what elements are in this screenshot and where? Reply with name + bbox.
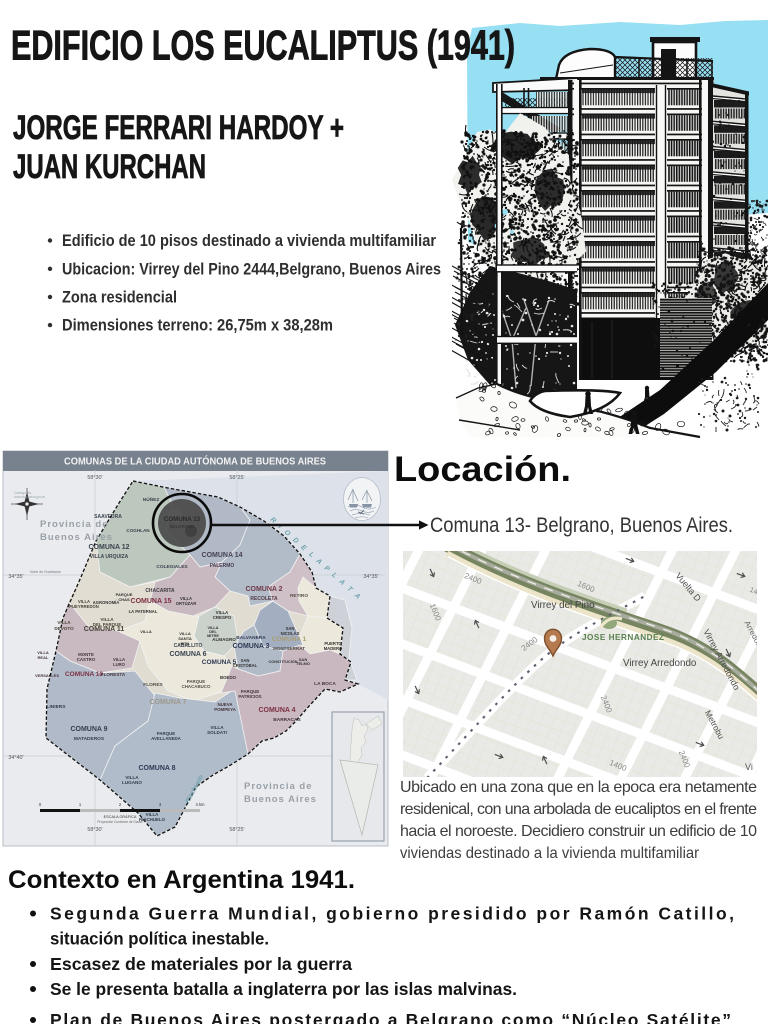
svg-text:CHACARITA: CHACARITA <box>145 588 175 594</box>
svg-text:LURO: LURO <box>113 662 126 667</box>
svg-text:4 km: 4 km <box>195 802 205 807</box>
svg-text:Ubicado en una zona que en la: Ubicado en una zona que en la epoca era … <box>400 779 757 796</box>
svg-text:34°40': 34°40' <box>8 755 23 761</box>
svg-text:CRESPO: CRESPO <box>213 615 232 620</box>
svg-text:RITA: RITA <box>180 641 189 646</box>
svg-text:Provincia de: Provincia de <box>40 519 109 530</box>
svg-text:AVELLANEDA: AVELLANEDA <box>151 736 182 741</box>
svg-text:RIACHUELO: RIACHUELO <box>139 817 166 822</box>
svg-text:Provincia de: Provincia de <box>244 781 313 792</box>
svg-text:Virrey Arredondo: Virrey Arredondo <box>623 658 697 669</box>
svg-text:BOEDO: BOEDO <box>220 675 237 680</box>
svg-text:Contexto en Argentina 1941.: Contexto en Argentina 1941. <box>8 866 355 894</box>
svg-text:POMPEYA: POMPEYA <box>214 707 236 712</box>
svg-text:COMUNA 10: COMUNA 10 <box>65 671 103 678</box>
svg-text:JOSE HERNANDEZ: JOSE HERNANDEZ <box>582 633 665 642</box>
svg-text:COMUNA 15: COMUNA 15 <box>131 598 172 605</box>
svg-text:DEL PARQUE: DEL PARQUE <box>93 622 121 627</box>
svg-text:Virrey del Pino: Virrey del Pino <box>531 600 595 611</box>
svg-text:BELGRANO: BELGRANO <box>170 524 195 529</box>
svg-text:COGHLAN: COGHLAN <box>126 528 150 533</box>
svg-text:58°30': 58°30' <box>87 475 102 481</box>
svg-text:EDIFICIO LOS EUCALIPTUS (1941): EDIFICIO LOS EUCALIPTUS (1941) <box>11 22 515 69</box>
svg-text:FLORESTA: FLORESTA <box>101 672 126 677</box>
svg-text:DEVOTO: DEVOTO <box>54 626 74 631</box>
svg-text:LINIERS: LINIERS <box>47 704 67 710</box>
svg-text:COMUNA 13: COMUNA 13 <box>164 516 201 523</box>
svg-text:COMUNA 9: COMUNA 9 <box>70 726 107 733</box>
svg-text:Buenos Aires: Buenos Aires <box>40 532 113 543</box>
svg-text:Proyección Conforme de Gauss: Proyección Conforme de Gauss <box>97 820 143 824</box>
svg-text:NICOLÁS: NICOLÁS <box>281 631 300 636</box>
svg-text:58°25': 58°25' <box>229 827 244 833</box>
svg-text:www.mapoteca.gov.ar: www.mapoteca.gov.ar <box>14 495 46 499</box>
svg-text:Segunda Guerra Mundial, gobier: Segunda Guerra Mundial, gobierno presidi… <box>50 904 734 924</box>
svg-text:CHACABUCO: CHACABUCO <box>182 684 211 689</box>
svg-text:VILLA URQUIZA: VILLA URQUIZA <box>90 554 129 560</box>
svg-text:58°25': 58°25' <box>229 475 244 481</box>
svg-text:COMUNAS DE LA CIUDAD AUTÓNOMA: COMUNAS DE LA CIUDAD AUTÓNOMA DE BUENOS … <box>64 455 326 468</box>
svg-text:PATRICIOS: PATRICIOS <box>238 694 261 699</box>
svg-text:VILLA: VILLA <box>140 629 152 634</box>
svg-text:CASTRO: CASTRO <box>77 657 96 662</box>
svg-text:CHAS: CHAS <box>118 597 130 602</box>
svg-text:Comuna 13- Belgrano, Buenos Ai: Comuna 13- Belgrano, Buenos Aires. <box>430 514 733 537</box>
svg-text:BALVANERA: BALVANERA <box>236 635 266 641</box>
svg-text:NÚÑEZ: NÚÑEZ <box>143 496 160 503</box>
svg-text:COMUNA 8: COMUNA 8 <box>138 765 175 772</box>
svg-text:58°30': 58°30' <box>87 827 102 833</box>
svg-text:PALERMO: PALERMO <box>210 563 235 569</box>
svg-text:RETIRO: RETIRO <box>290 593 308 599</box>
svg-text:COMUNA 1: COMUNA 1 <box>272 636 307 643</box>
svg-text:ORTÚZAR: ORTÚZAR <box>176 601 196 606</box>
svg-text:Se le presenta batalla a ingla: Se le presenta batalla a inglaterra por … <box>50 979 517 999</box>
svg-text:SOLDATI: SOLDATI <box>207 730 227 735</box>
svg-text:Escasez de materiales por la g: Escasez de materiales por la guerra <box>50 954 352 974</box>
svg-text:LA BOCA: LA BOCA <box>314 681 336 687</box>
svg-text:CRISTÓBAL: CRISTÓBAL <box>233 663 258 668</box>
svg-text:MATADEROS: MATADEROS <box>74 736 105 742</box>
svg-text:Buenos Aires: Buenos Aires <box>244 794 317 805</box>
svg-text:ESCALA GRÁFICA: ESCALA GRÁFICA <box>104 815 137 819</box>
svg-text:BARRACAS: BARRACAS <box>273 717 301 723</box>
svg-text:COMUNA 6: COMUNA 6 <box>169 651 206 658</box>
svg-text:ALMAGRO: ALMAGRO <box>212 637 236 642</box>
svg-text:hacia el noroeste. Decidiero c: hacia el noroeste. Decidiero construir u… <box>400 823 757 840</box>
svg-text:COMUNA 7: COMUNA 7 <box>149 699 186 706</box>
svg-text:Zona residencial: Zona residencial <box>62 289 177 307</box>
svg-text:34°35': 34°35' <box>363 574 378 580</box>
svg-text:LA PATERNAL: LA PATERNAL <box>129 609 158 614</box>
svg-text:VERSALLES: VERSALLES <box>35 673 59 678</box>
svg-text:residenical, con una arbolada: residenical, con una arbolada de eucalip… <box>400 801 757 818</box>
svg-text:Ubicacion: Virrey del Pino 244: Ubicacion: Virrey del Pino 2444,Belgrano… <box>62 260 441 278</box>
svg-text:COMUNA 5: COMUNA 5 <box>202 659 237 666</box>
svg-text:COMUNA 4: COMUNA 4 <box>258 707 295 714</box>
svg-text:viviendas destinado a la vivie: viviendas destinado a la vivienda multif… <box>400 845 700 862</box>
svg-text:Edificio de 10 pisos destinado: Edificio de 10 pisos destinado a viviend… <box>62 232 437 250</box>
svg-text:COMUNA 14: COMUNA 14 <box>202 552 243 559</box>
svg-text:COMUNA 12: COMUNA 12 <box>89 544 130 551</box>
svg-text:LUGANO: LUGANO <box>122 780 142 785</box>
svg-text:situación política inestable.: situación política inestable. <box>50 929 269 949</box>
svg-text:AGRONOMÍA: AGRONOMÍA <box>93 600 120 605</box>
svg-text:CONSTITUCIÓN: CONSTITUCIÓN <box>269 659 298 664</box>
svg-text:Norte de Gravitación: Norte de Gravitación <box>30 570 61 574</box>
svg-text:MONTSERRAT: MONTSERRAT <box>273 646 305 651</box>
svg-text:34°35': 34°35' <box>8 574 23 580</box>
svg-text:Dimensiones terreno: 26,75m x: Dimensiones terreno: 26,75m x 38,28m <box>62 317 333 335</box>
svg-text:RECOLETA: RECOLETA <box>250 596 278 602</box>
svg-text:COMUNA 2: COMUNA 2 <box>245 586 282 593</box>
svg-text:Locación.: Locación. <box>394 449 571 489</box>
svg-text:MADERO: MADERO <box>324 646 343 651</box>
svg-text:Vi: Vi <box>745 762 753 772</box>
svg-text:JUAN KURCHAN: JUAN KURCHAN <box>13 148 206 186</box>
svg-text:Plan de Buenos Aires postergad: Plan de Buenos Aires postergado a Belgra… <box>50 1010 731 1024</box>
svg-text:VILLA: VILLA <box>57 620 71 625</box>
svg-text:FLORES: FLORES <box>143 682 163 688</box>
svg-text:COMUNA 11: COMUNA 11 <box>84 626 125 633</box>
svg-text:COLEGIALES: COLEGIALES <box>156 564 188 570</box>
svg-text:COMUNA 3: COMUNA 3 <box>232 643 269 650</box>
svg-text:REAL: REAL <box>38 655 49 660</box>
svg-text:JORGE FERRARI HARDOY +: JORGE FERRARI HARDOY + <box>13 109 344 147</box>
svg-text:TELMO: TELMO <box>296 661 310 666</box>
